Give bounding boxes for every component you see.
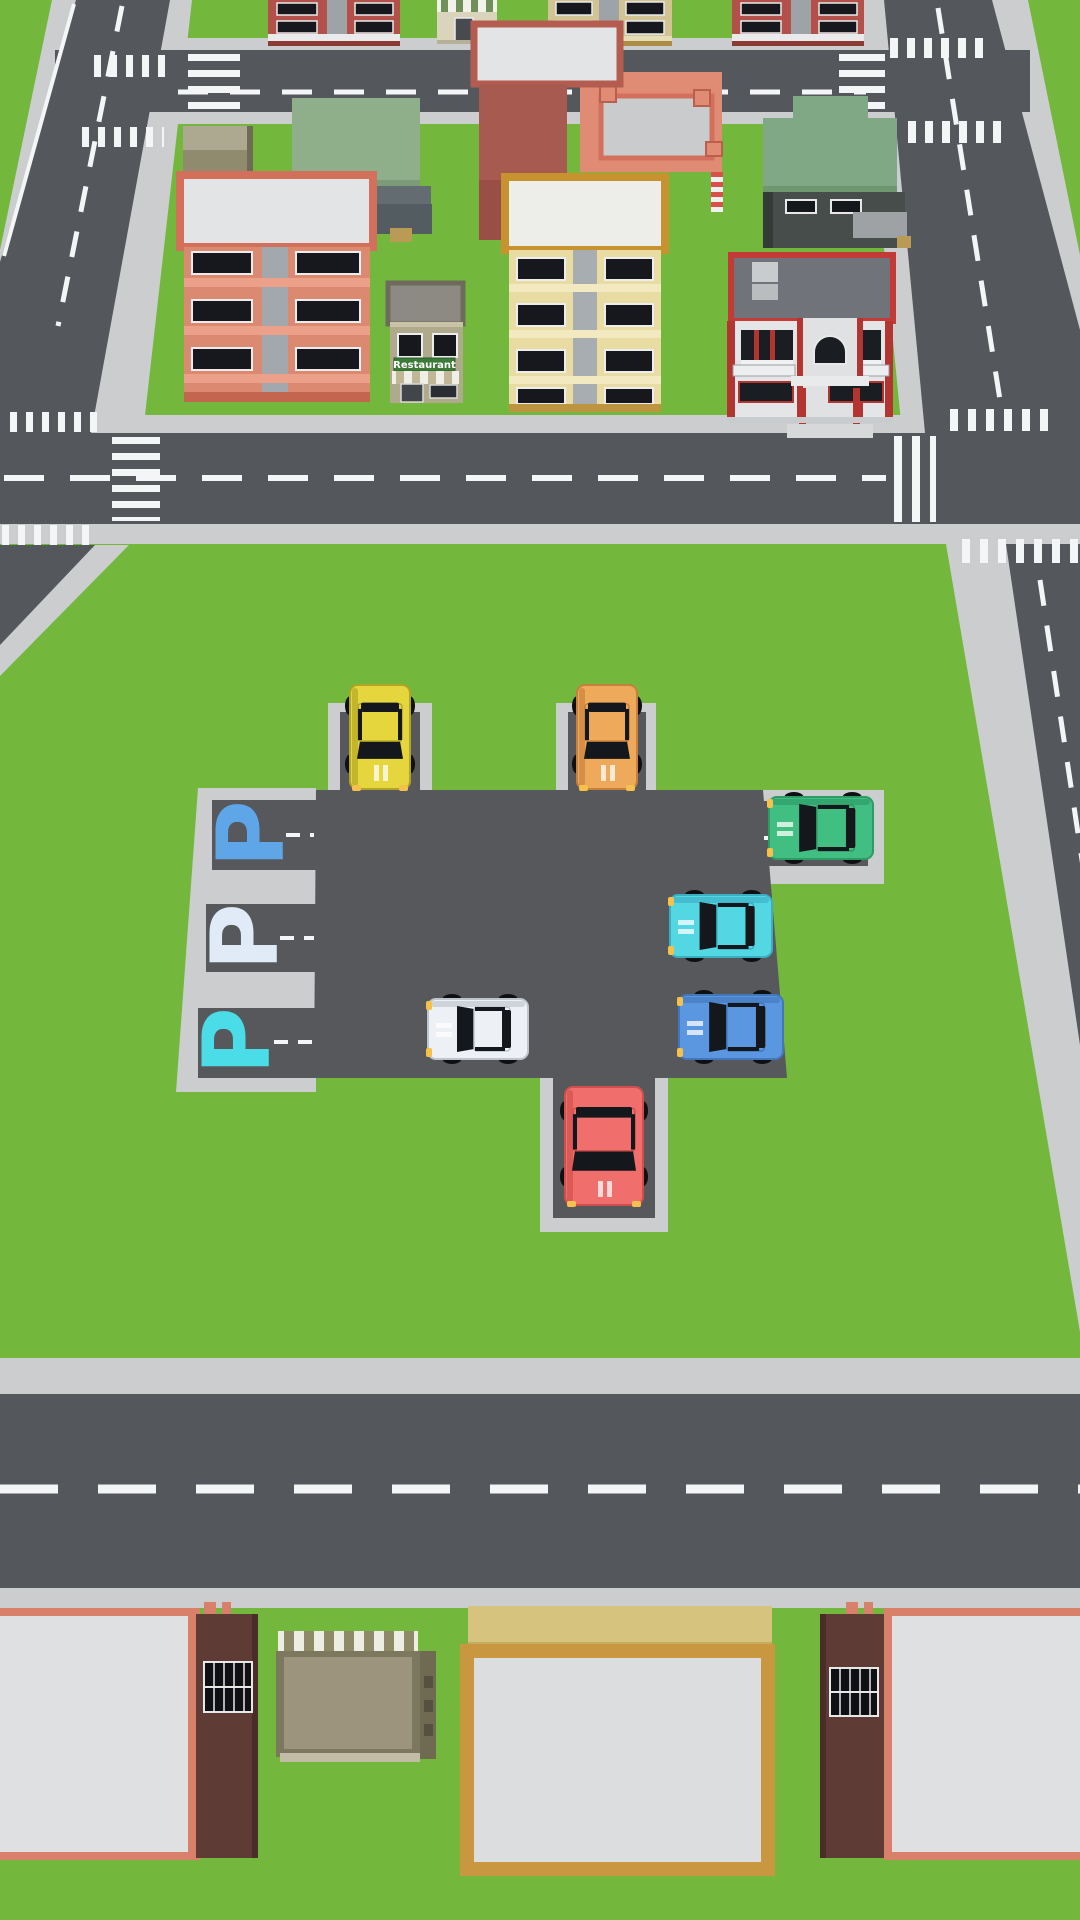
building-bottom-center xyxy=(460,1606,775,1876)
car-blue[interactable] xyxy=(677,990,783,1064)
window-grid-icon xyxy=(830,1668,878,1716)
parking-marker-2: P xyxy=(192,903,299,970)
turret-icon xyxy=(694,90,710,106)
car-white[interactable] xyxy=(426,994,528,1064)
building-bottom-left xyxy=(0,1602,258,1860)
turret-icon xyxy=(600,86,616,102)
turret-icon xyxy=(706,142,722,156)
building-restaurant: Restaurant xyxy=(388,283,463,403)
building-brick-right xyxy=(732,0,864,46)
striped-pole-icon xyxy=(711,172,723,212)
window-grid-icon xyxy=(204,1662,252,1712)
game-scene: Restaurant xyxy=(0,0,1080,1920)
car-cyan[interactable] xyxy=(668,890,772,962)
car-red[interactable] xyxy=(560,1087,648,1207)
parking-markers: PPP xyxy=(184,800,305,1074)
parking-marker-1: P xyxy=(198,800,305,867)
building-green-roof xyxy=(763,96,911,248)
building-brick-left xyxy=(268,0,400,46)
city-canvas: Restaurant xyxy=(0,0,1080,1920)
building-fire-station xyxy=(727,255,893,438)
buildings-bottom-row xyxy=(0,1602,1080,1876)
parking-marker-3: P xyxy=(184,1007,291,1074)
arch-window xyxy=(814,336,846,364)
building-bottom-olive-shop xyxy=(276,1631,436,1762)
building-olive-box xyxy=(183,126,253,174)
car-green[interactable] xyxy=(767,792,873,864)
building-salmon-apartment xyxy=(180,175,373,402)
car-orange[interactable] xyxy=(572,685,642,791)
car-yellow[interactable] xyxy=(345,685,415,791)
building-bottom-right xyxy=(820,1602,1080,1860)
building-yellow-apartment xyxy=(505,177,665,412)
restaurant-sign-text: Restaurant xyxy=(393,360,456,371)
door xyxy=(401,384,423,402)
